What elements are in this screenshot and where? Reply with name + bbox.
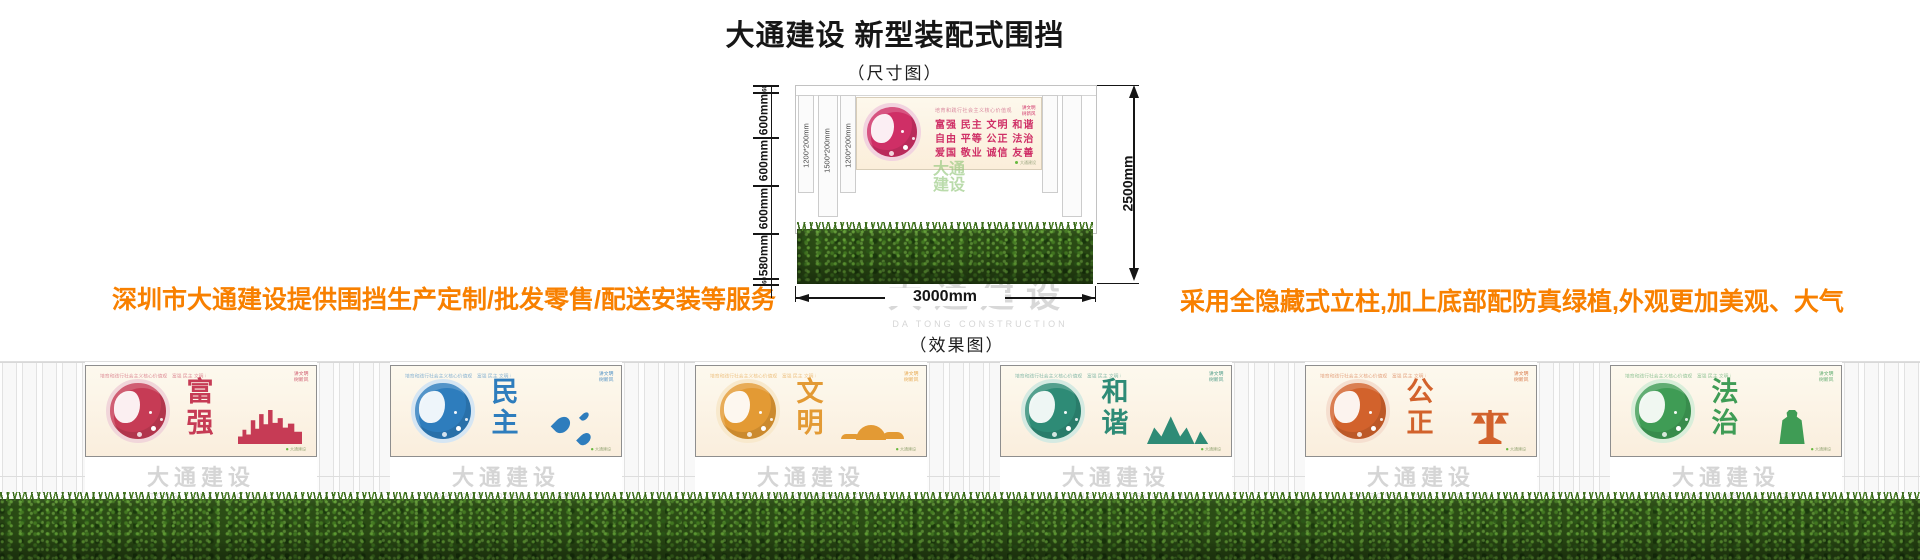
hedge-strip-full — [0, 499, 1920, 560]
hidden-post-group — [1232, 362, 1305, 493]
effect-panel: 培育和践行社会主义核心价值观 富强 民主 文明 和谐 自由 平等 公正 法治 爱… — [695, 365, 927, 457]
hidden-post-group — [622, 362, 695, 493]
post-size-label: 1200*200mm — [844, 106, 853, 186]
hidden-post-group — [1842, 362, 1920, 493]
corner-slogan: 讲文明 树新风 — [1819, 372, 1835, 383]
papercut-circle-graphic — [863, 103, 921, 161]
header: 大通建设 新型装配式围挡 （尺寸图） — [595, 12, 1195, 84]
watermark-cn: 大通建设 — [85, 460, 317, 492]
poster-brand-watermark: 大通 建设 — [927, 162, 971, 194]
extension-line — [771, 284, 772, 298]
corner-slogan: 讲文明 树新风 — [904, 372, 920, 383]
watermark-cn: 大通建设 — [1305, 460, 1537, 492]
billboard: 培育和践行社会主义核心价值观 富强 民主 文明 和谐 自由 平等 公正 法治 爱… — [390, 365, 622, 457]
extension-line — [1097, 283, 1139, 284]
papercut-circle-graphic — [106, 379, 170, 443]
green-dot-icon — [1015, 161, 1018, 164]
hidden-post-group — [1537, 362, 1610, 493]
papercut-circle-graphic — [716, 379, 780, 443]
effect-diagram-label: （效果图） — [857, 331, 1057, 356]
green-dot-icon — [591, 448, 593, 450]
billboard: 培育和践行社会主义核心价值观 富强 民主 文明 和谐 自由 平等 公正 法治 爱… — [1000, 365, 1232, 457]
values-row: 自由 平等 公正 法治 — [935, 130, 1034, 145]
corner-slogan: 讲文明 树新风 — [1022, 105, 1038, 116]
effect-panel: 培育和践行社会主义核心价值观 富强 民主 文明 和谐 自由 平等 公正 法治 爱… — [85, 365, 317, 457]
poster-slogan: 培育和践行社会主义核心价值观 — [935, 107, 1012, 114]
theme-word: 文明 — [794, 377, 826, 439]
service-note: 深圳市大通建设提供围挡生产定制/批发零售/配送安装等服务 — [112, 280, 776, 316]
hedge-strip — [797, 229, 1093, 284]
theme-motif-icon — [1147, 414, 1219, 444]
green-dot-icon — [1201, 448, 1203, 450]
green-dot-icon — [286, 448, 288, 450]
feature-note: 采用全隐藏式立柱,加上底部配防真绿植,外观更加美观、大气 — [1180, 282, 1844, 318]
billboard: 培育和践行社会主义核心价值观 富强 民主 文明 和谐 自由 平等 公正 法治 爱… — [1610, 365, 1842, 457]
papercut-circle-graphic — [1326, 379, 1390, 443]
effect-panel: 培育和践行社会主义核心价值观 富强 民主 文明 和谐 自由 平等 公正 法治 爱… — [1305, 365, 1537, 457]
footer-note: 大通建设 — [1506, 446, 1526, 452]
values-row: 富强 民主 文明 和谐 — [935, 116, 1034, 131]
footer-note: 大通建设 — [1811, 446, 1831, 452]
dimension-label: 600mm — [758, 186, 771, 232]
height-dimension-label: 2500mm — [1121, 149, 1136, 219]
watermark-cn: 大通建设 — [1000, 460, 1232, 492]
arrow-left-icon — [796, 294, 809, 302]
watermark-cn: 大通建设 — [695, 460, 927, 492]
theme-motif-icon — [1468, 410, 1512, 444]
post-size-label: 1500*200mm — [823, 111, 832, 191]
poster-canvas: 大通建设 新型装配式围挡 （尺寸图） 深圳市大通建设提供围挡生产定制/批发零售/… — [0, 0, 1920, 560]
footer-note: 大通建设 — [1201, 446, 1221, 452]
watermark-cn: 大通建设 — [390, 460, 622, 492]
values-row: 爱国 敬业 诚信 友善 — [935, 144, 1034, 159]
theme-word: 民主 — [489, 377, 521, 439]
green-dot-icon — [896, 448, 898, 450]
hidden-post-group — [927, 362, 1000, 493]
theme-motif-icon — [551, 414, 574, 437]
post-size-label: 1200*200mm — [802, 106, 811, 186]
corner-slogan: 讲文明 树新风 — [599, 372, 615, 383]
theme-word: 法治 — [1709, 377, 1741, 439]
theme-word: 和谐 — [1099, 377, 1131, 439]
theme-word: 公正 — [1404, 377, 1436, 439]
billboard: 培育和践行社会主义核心价值观 富强 民主 文明 和谐 自由 平等 公正 法治 爱… — [85, 365, 317, 457]
hidden-post-group — [0, 362, 85, 493]
billboard: 培育和践行社会主义核心价值观 富强 民主 文明 和谐 自由 平等 公正 法治 爱… — [695, 365, 927, 457]
theme-motif-icon — [238, 410, 302, 444]
dimension-diagram-label: （尺寸图） — [595, 59, 1195, 84]
effect-panel: 培育和践行社会主义核心价值观 富强 民主 文明 和谐 自由 平等 公正 法治 爱… — [1000, 365, 1232, 457]
green-dot-icon — [1811, 448, 1813, 450]
dimension-label: 580mm — [758, 233, 771, 279]
corner-slogan: 讲文明 树新风 — [1209, 372, 1225, 383]
footer-note: 大通建设 — [286, 446, 306, 452]
post-slat — [1042, 95, 1058, 193]
green-dot-icon — [1506, 448, 1508, 450]
corner-slogan: 讲文明 树新风 — [1514, 372, 1530, 383]
page-title: 大通建设 新型装配式围挡 — [595, 12, 1195, 54]
post-slat — [1062, 95, 1082, 217]
papercut-circle-graphic — [411, 379, 475, 443]
theme-motif-icon — [1777, 410, 1807, 444]
arrow-down-icon — [1129, 268, 1139, 281]
core-values-poster: 培育和践行社会主义核心价值观 富强 民主 文明 和谐 自由 平等 公正 法治 爱… — [856, 97, 1042, 170]
width-dimension-label: 3000mm — [885, 288, 1005, 306]
papercut-circle-graphic — [1021, 379, 1085, 443]
watermark-cn: 大通建设 — [1610, 460, 1842, 492]
billboard: 培育和践行社会主义核心价值观 富强 民主 文明 和谐 自由 平等 公正 法治 爱… — [1305, 365, 1537, 457]
papercut-circle-graphic — [1631, 379, 1695, 443]
footer-note: 大通建设 — [896, 446, 916, 452]
dimension-label: 60 — [763, 275, 770, 287]
dimension-label: 600mm — [758, 92, 771, 138]
effect-panel: 培育和践行社会主义核心价值观 富强 民主 文明 和谐 自由 平等 公正 法治 爱… — [390, 365, 622, 457]
arrow-right-icon — [1082, 294, 1095, 302]
hidden-post-group — [317, 362, 390, 493]
footer-note: 大通建设 — [591, 446, 611, 452]
arrow-up-icon — [1129, 85, 1139, 98]
effect-panel: 培育和践行社会主义核心价值观 富强 民主 文明 和谐 自由 平等 公正 法治 爱… — [1610, 365, 1842, 457]
theme-word: 富强 — [184, 377, 216, 439]
corner-slogan: 讲文明 树新风 — [294, 372, 310, 383]
dimension-label: 600mm — [758, 138, 771, 184]
theme-motif-icon — [856, 425, 886, 440]
footer-note: 大通建设 — [1015, 160, 1036, 166]
watermark-en: DA TONG CONSTRUCTION — [850, 319, 1110, 329]
